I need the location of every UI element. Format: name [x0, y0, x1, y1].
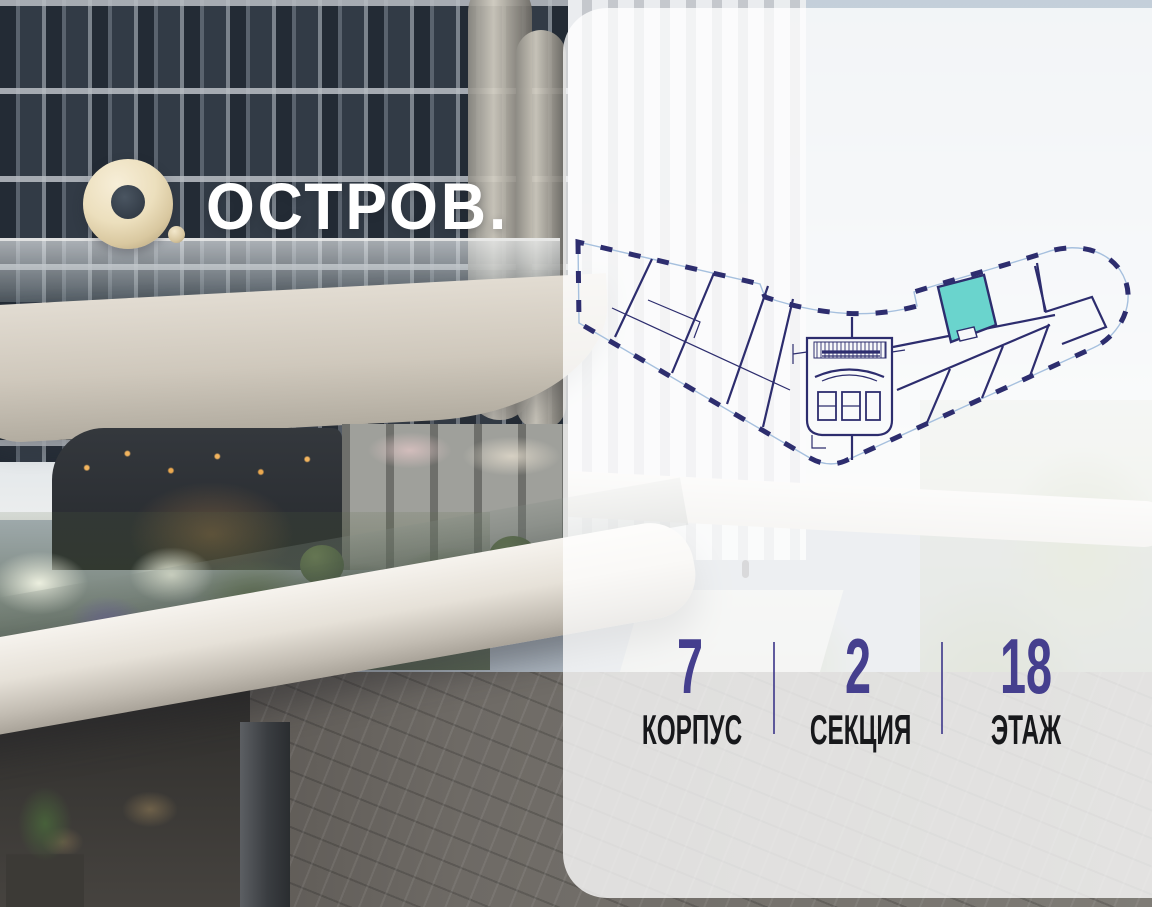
- sekciya-value: 2: [808, 630, 908, 702]
- screenshot-root: ОСТРОВ.: [0, 0, 1152, 907]
- brand-dot-icon: [168, 226, 185, 243]
- korpus-label: КОРПУС: [641, 710, 737, 750]
- stat-etazh: 18 ЭТАЖ: [943, 630, 1109, 750]
- etazh-value: 18: [976, 630, 1076, 702]
- stat-korpus: 7 КОРПУС: [607, 630, 773, 750]
- floorplan-panel: [563, 8, 1152, 898]
- brand-ring-hole: [111, 185, 145, 219]
- bridge-pillar: [240, 722, 290, 907]
- etazh-label: ЭТАЖ: [977, 710, 1073, 750]
- korpus-value: 7: [640, 630, 740, 702]
- brand-wordmark: ОСТРОВ.: [206, 170, 509, 242]
- sekciya-label: СЕКЦИЯ: [809, 710, 905, 750]
- plant-pot: [6, 788, 84, 907]
- stat-sekciya: 2 СЕКЦИЯ: [775, 630, 941, 750]
- stats-row: 7 КОРПУС 2 СЕКЦИЯ 18 ЭТАЖ: [563, 630, 1152, 760]
- brand-ring-icon: [83, 159, 173, 249]
